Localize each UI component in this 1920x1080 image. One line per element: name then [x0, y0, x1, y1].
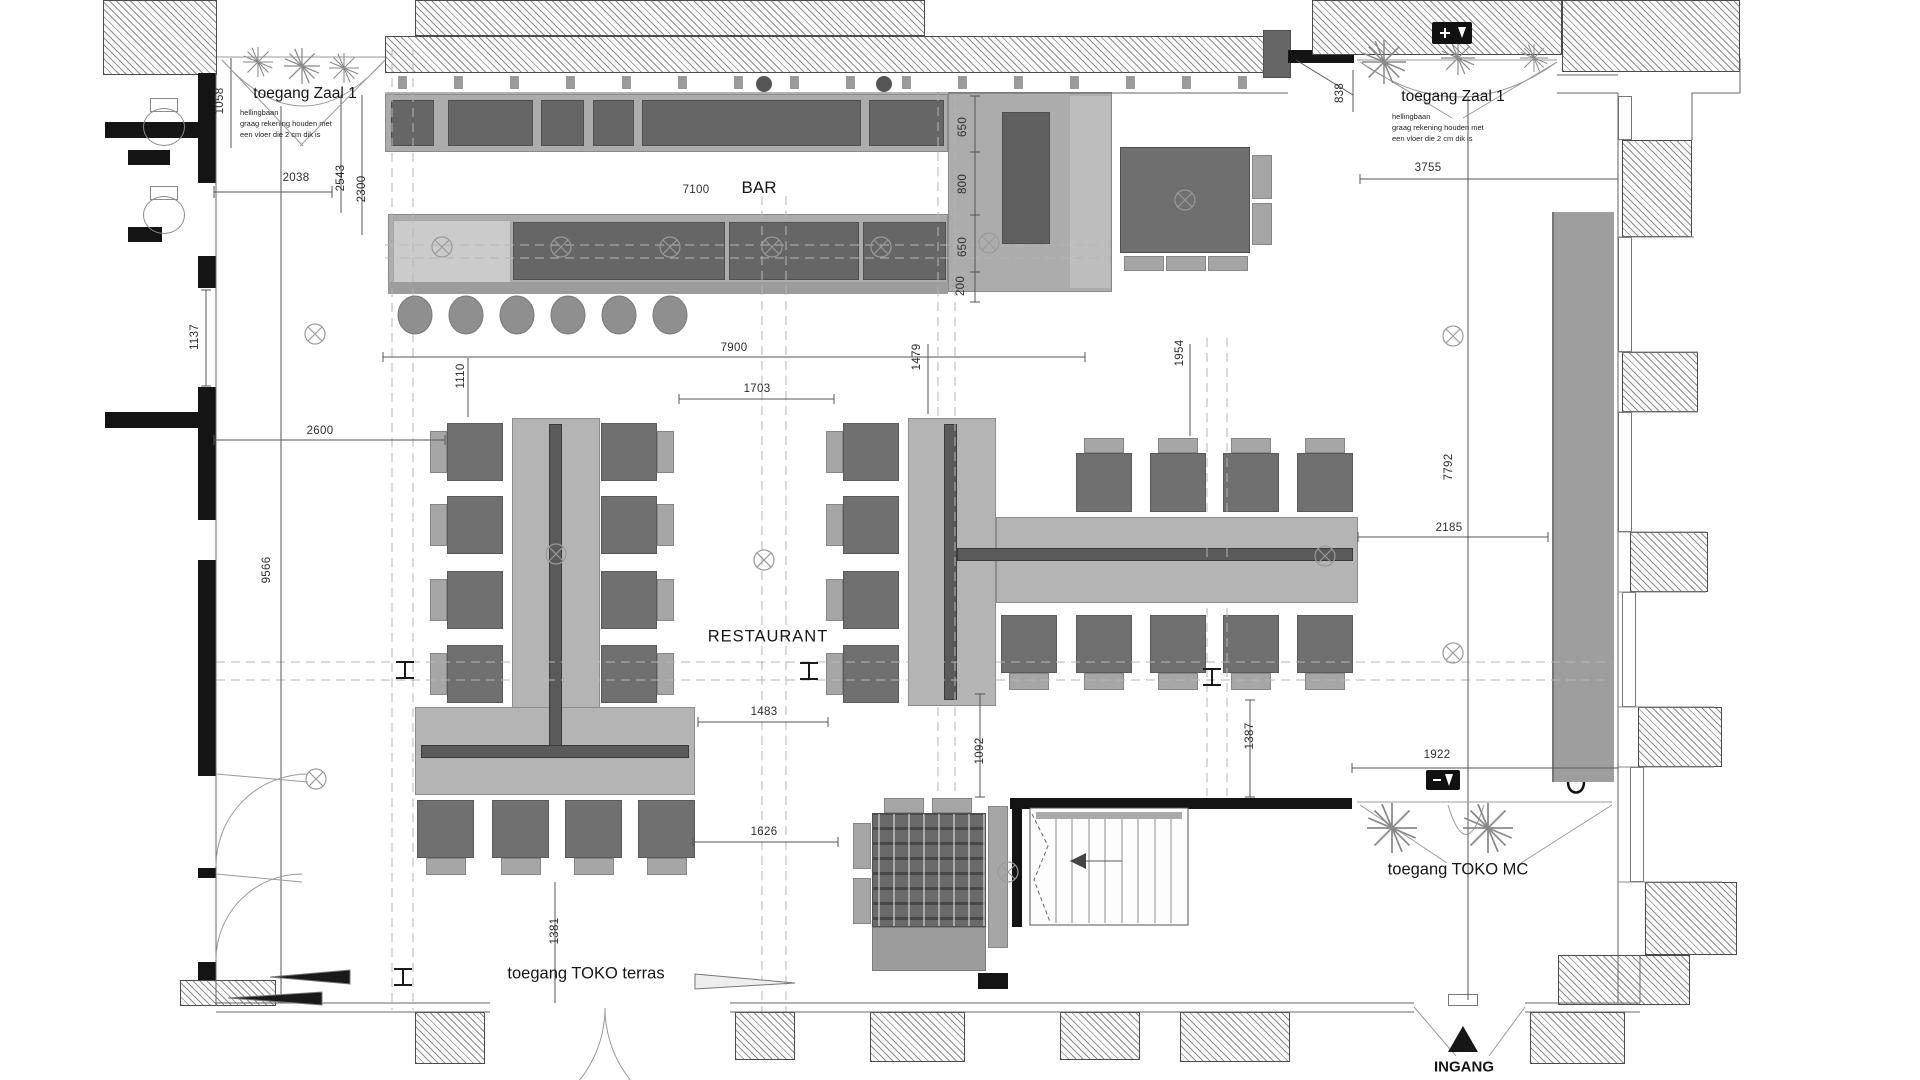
wall-hatch-right [1645, 882, 1737, 955]
bar-counter-edge [388, 282, 948, 294]
window-right [1618, 412, 1632, 532]
chair [1208, 256, 1248, 271]
ramp-note-line: een vloer die 2 cm dik is [1392, 134, 1472, 143]
dim-2300: 2300 [356, 176, 368, 203]
wall-hatch-right [1638, 707, 1722, 767]
entrance-label-zaal1-right: toegang Zaal 1 [1401, 88, 1504, 106]
dim-1092: 1092 [974, 738, 986, 765]
dim-2185: 2185 [1436, 522, 1463, 534]
chair [843, 645, 899, 703]
wall-cabinet-right [1552, 212, 1614, 782]
chair-back [826, 653, 843, 695]
chair-back [574, 858, 614, 875]
dim-1626: 1626 [751, 826, 778, 838]
high-table [1120, 147, 1250, 253]
chair-back [430, 579, 447, 621]
dim-7100: 7100 [683, 184, 710, 196]
bar-counter-left-panel [393, 220, 511, 288]
chair-back [657, 579, 674, 621]
chair-back [430, 504, 447, 546]
facade-pier [1060, 1012, 1140, 1060]
room-label-bar: BAR [742, 178, 777, 198]
ramp-note-line: hellingbaan [1392, 112, 1430, 121]
wall-pier [1263, 30, 1291, 78]
bar-stools [398, 296, 687, 334]
dim-1110: 1110 [455, 363, 467, 388]
chair-back [501, 858, 541, 875]
chair-back [657, 504, 674, 546]
facade-pier [1530, 1012, 1625, 1064]
entrance-label-toko-terras: toegang TOKO terras [507, 965, 664, 984]
ramp-note-line: graag rekening houden met [1392, 123, 1484, 132]
back-bar-equipment [593, 100, 634, 146]
table-center-strip [421, 745, 689, 758]
dim-7792: 7792 [1443, 454, 1455, 481]
ingang-door-leaf [1448, 994, 1478, 1006]
facade-pier [1180, 1012, 1290, 1062]
chair-back [1305, 673, 1345, 690]
chair [1297, 453, 1353, 512]
chair-back [657, 653, 674, 695]
dim-7900: 7900 [721, 342, 748, 354]
chair [1001, 615, 1057, 673]
wall-left-segment [198, 256, 216, 288]
chair [1076, 615, 1132, 673]
ramp-note-line: hellingbaan [240, 108, 278, 117]
toilet-tank [150, 186, 178, 200]
bar-counter-top [729, 222, 859, 280]
wall-stair-side [1012, 809, 1022, 927]
dim-1387: 1387 [1244, 723, 1256, 750]
wall-hatch-left-bottom [180, 980, 276, 1006]
chair [601, 571, 657, 629]
toilet-fixture [143, 196, 185, 234]
wall-hatch-corner [1558, 955, 1690, 1005]
chair-back [853, 878, 871, 924]
dim-1703: 1703 [744, 383, 771, 395]
dim-1381: 1381 [549, 918, 561, 945]
chair-back [1084, 673, 1124, 690]
bar-counter-top [513, 222, 725, 280]
chair [843, 496, 899, 554]
chair [565, 800, 622, 858]
floor-plan: BAR RESTAURANT toegang Zaal 1 hellingbaa… [0, 0, 1920, 1080]
chair-back [932, 798, 972, 813]
ramp-note-line: graag rekening houden met [240, 119, 332, 128]
back-bar-equipment [869, 100, 944, 146]
dim-2600: 2600 [307, 425, 334, 437]
back-bar-equipment [448, 100, 533, 146]
dim-1922: 1922 [1424, 749, 1451, 761]
chair-back [1158, 438, 1198, 453]
dim-650-bottom: 650 [957, 237, 969, 257]
back-bar-equipment [391, 100, 434, 146]
chair [447, 423, 503, 481]
entrance-label-zaal1-left: toegang Zaal 1 [253, 85, 356, 103]
chair-back [884, 798, 924, 813]
chair-back [1231, 438, 1271, 453]
window-right [1622, 592, 1636, 707]
chair [1297, 615, 1353, 673]
bar-equipment [1002, 112, 1050, 244]
chair [601, 496, 657, 554]
chair-back [426, 858, 466, 875]
chair [1150, 615, 1206, 673]
window-right [1630, 767, 1644, 882]
facade-pier [415, 1012, 485, 1064]
chair-back [1009, 673, 1049, 690]
table-center-strip [957, 548, 1353, 561]
chair [1223, 615, 1279, 673]
chair-back [430, 653, 447, 695]
wall-hatch-right [1630, 532, 1708, 592]
chair [843, 571, 899, 629]
chair-back [1158, 673, 1198, 690]
wall-left-segment [198, 387, 216, 520]
wall-hatch-right [1622, 140, 1692, 237]
chair-back [657, 431, 674, 473]
chair [601, 423, 657, 481]
table-center-strip [944, 424, 957, 700]
chair [1252, 203, 1272, 245]
ramp-note-line: een vloer die 2 cm dik is [240, 130, 320, 139]
wall-hatch-top-upper [415, 0, 925, 36]
chair [843, 423, 899, 481]
dim-3755: 3755 [1415, 162, 1442, 174]
chair [638, 800, 695, 858]
dim-1479: 1479 [911, 344, 923, 371]
chair-back [1305, 438, 1345, 453]
wall-hatch-right [1622, 352, 1698, 412]
dim-1954: 1954 [1174, 340, 1186, 367]
toilet-fixture [143, 108, 185, 146]
dim-1058: 1058 [214, 88, 226, 115]
dim-9566: 9566 [261, 557, 273, 584]
chair [1223, 453, 1279, 512]
chair-back [853, 823, 871, 869]
chair [601, 645, 657, 703]
chair [447, 645, 503, 703]
square-table-planted [872, 813, 986, 927]
dim-650-top: 650 [957, 117, 969, 137]
dim-1483: 1483 [751, 706, 778, 718]
dim-2038: 2038 [283, 172, 310, 184]
chair [447, 571, 503, 629]
window-right [1618, 96, 1632, 140]
wall-hatch-top-corner [1562, 0, 1740, 72]
chair-back [1231, 673, 1271, 690]
facade-pier [870, 1012, 965, 1062]
wall-left-segment [198, 868, 216, 878]
table-center-strip [549, 424, 562, 758]
back-bar-equipment [642, 100, 861, 146]
dim-800: 800 [957, 174, 969, 194]
entrance-label-toko-mc: toegang TOKO MC [1388, 861, 1529, 880]
chair-back [826, 579, 843, 621]
chair-back [430, 431, 447, 473]
bar-counter-top [863, 222, 946, 280]
chair-back [647, 858, 687, 875]
chair-back [826, 504, 843, 546]
bar-return-counter [1070, 96, 1110, 288]
back-bar-equipment [541, 100, 584, 146]
chair [492, 800, 549, 858]
bench [988, 806, 1008, 948]
chair [447, 496, 503, 554]
wall-hatch-top [385, 36, 1290, 73]
chair [1166, 256, 1206, 271]
square-table-base [872, 927, 986, 971]
dim-1137: 1137 [189, 324, 201, 350]
wall-hatch-top-right [1312, 0, 1562, 55]
dim-200: 200 [955, 276, 967, 296]
wall-hatch-top-left [103, 0, 217, 75]
chair [1124, 256, 1164, 271]
window-right [1618, 237, 1632, 352]
chair [1150, 453, 1206, 512]
staircase [1030, 808, 1188, 925]
wall-left-segment [198, 560, 216, 776]
chair-back [826, 431, 843, 473]
chair [1076, 453, 1132, 512]
wall-block [978, 973, 1008, 989]
room-label-restaurant: RESTAURANT [708, 628, 829, 647]
facade-pier [735, 1012, 795, 1060]
wc-partition [128, 150, 170, 165]
dim-838: 838 [1334, 83, 1346, 103]
wall-stub [105, 412, 216, 428]
wall-toko-mc [1010, 798, 1352, 809]
toilet-tank [150, 98, 178, 112]
window-mullions [398, 76, 1247, 92]
ingang-arrow-icon [1448, 1026, 1478, 1052]
dim-2543: 2543 [335, 165, 347, 192]
chair-back [1084, 438, 1124, 453]
chair [417, 800, 474, 858]
chair [1252, 155, 1272, 199]
pictogram-icon [1426, 770, 1460, 790]
entrance-label-ingang: INGANG [1434, 1059, 1494, 1076]
